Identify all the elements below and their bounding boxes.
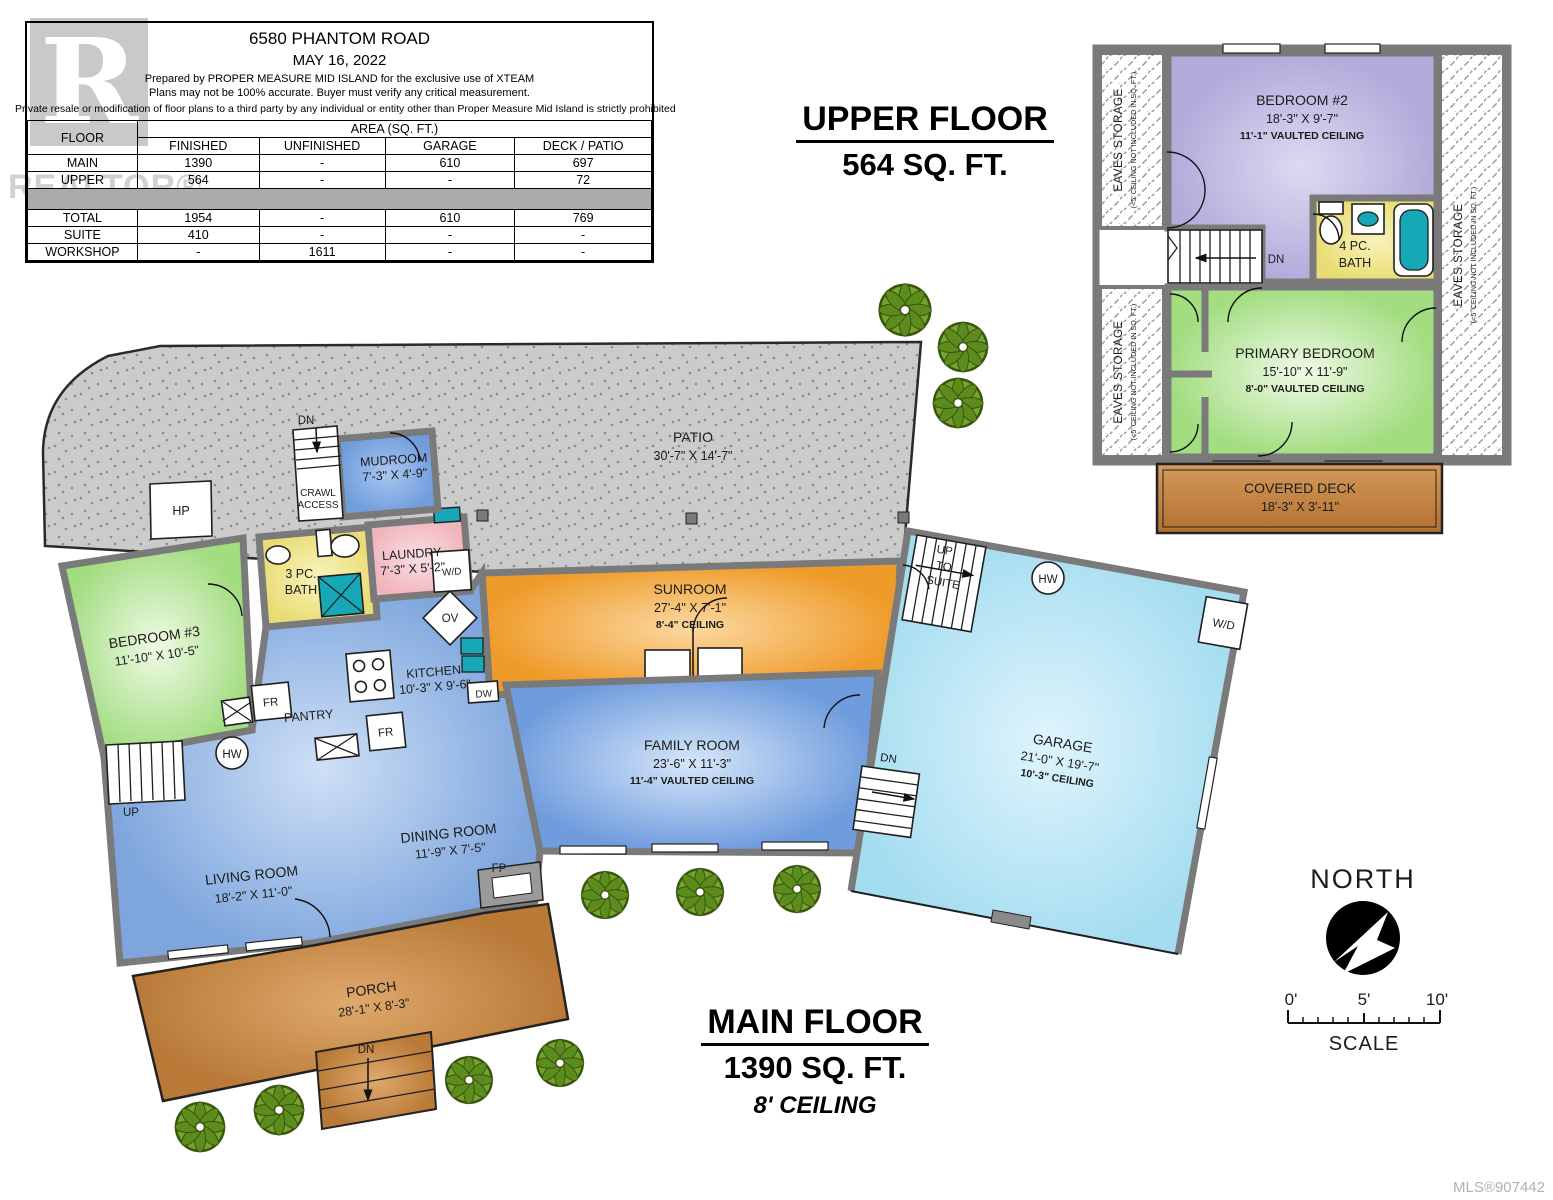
svg-text:(<5' CEILING NOT INCLUDED IN S: (<5' CEILING NOT INCLUDED IN SQ. FT.) bbox=[1129, 72, 1138, 208]
upper-dn-label: DN bbox=[1268, 254, 1285, 266]
garage-dn-stairs bbox=[853, 766, 919, 837]
accuracy-line: Plans may not be 100% accurate. Buyer mu… bbox=[27, 87, 652, 99]
scale-tick-0: 0' bbox=[1285, 990, 1298, 1009]
bath4-label-1: 4 PC. bbox=[1339, 239, 1370, 253]
shrub-icon bbox=[445, 1056, 493, 1104]
bedroom2-label: BEDROOM #2 bbox=[1256, 92, 1348, 108]
crawl-dn-label: DN bbox=[298, 415, 315, 427]
fireplace: FP bbox=[478, 862, 543, 908]
crawl-label-2: ACCESS bbox=[297, 500, 338, 511]
main-floor-title: MAIN FLOOR 1390 SQ. FT. 8' CEILING bbox=[655, 1003, 975, 1120]
primary-dims: 15'-10" X 11'-9" bbox=[1263, 365, 1348, 379]
scale-tick-10: 10' bbox=[1426, 990, 1448, 1009]
fp-label: FP bbox=[492, 863, 507, 875]
col-unfinished: UNFINISHED bbox=[259, 138, 385, 155]
family-dims: 23'-6" X 11'-3" bbox=[653, 757, 731, 771]
crawl-access-stairs: DN CRAWL ACCESS bbox=[293, 415, 343, 521]
deck-label: COVERED DECK bbox=[1244, 480, 1357, 496]
table-row: MAIN1390 -610 697 bbox=[28, 155, 652, 172]
area-table: FLOOR AREA (SQ. FT.) FINISHED UNFINISHED… bbox=[27, 120, 652, 261]
shrub-icon bbox=[536, 1039, 584, 1087]
primary-label: PRIMARY BEDROOM bbox=[1235, 345, 1375, 361]
upper-floor-title: UPPER FLOOR 564 SQ. FT. bbox=[775, 100, 1075, 183]
hp-label: HP bbox=[172, 504, 189, 518]
sunroom-label: SUNROOM bbox=[653, 581, 726, 597]
table-row: UPPER564 -- 72 bbox=[28, 172, 652, 189]
shrub-icon bbox=[938, 322, 988, 372]
fridge1-label: FR bbox=[262, 696, 279, 710]
bedroom2-dims: 18'-3" X 9'-7" bbox=[1266, 112, 1338, 126]
col-finished: FINISHED bbox=[137, 138, 259, 155]
up-label: UP bbox=[123, 807, 139, 819]
area-header: AREA (SQ. FT.) bbox=[137, 121, 651, 138]
mls-number: MLS®907442 bbox=[1453, 1179, 1545, 1196]
upper-floor-plan: BEDROOM #2 18'-3" X 9'-7" 11'-1" VAULTED… bbox=[1096, 44, 1508, 533]
deck-dims: 18'-3" X 3'-11" bbox=[1261, 500, 1339, 514]
heat-pump: HP bbox=[150, 481, 212, 539]
shrub-icon bbox=[175, 1102, 225, 1152]
family-ceiling: 11'-4" VAULTED CEILING bbox=[630, 775, 754, 787]
svg-text:EAVES STORAGE: EAVES STORAGE bbox=[1113, 88, 1125, 191]
fridge2-label: FR bbox=[377, 726, 394, 740]
bath3-label-2: BATH bbox=[285, 583, 317, 597]
room-laundry: LAUNDRY 7'-3" X 5'-2" W/D bbox=[368, 507, 471, 599]
bath4-label-2: BATH bbox=[1339, 256, 1371, 270]
scale-bar: 0' 5' 10' SCALE bbox=[1285, 990, 1448, 1055]
dw-label: DW bbox=[475, 688, 493, 700]
garage-hw-label: HW bbox=[1038, 574, 1057, 586]
shrub-icon bbox=[879, 284, 932, 337]
info-table: 6580 PHANTOM ROAD MAY 16, 2022 Prepared … bbox=[25, 21, 654, 263]
shrub-icon bbox=[581, 871, 629, 919]
room-mudroom: MUDROOM 7'-3" X 4'-9" bbox=[337, 431, 438, 517]
family-label: FAMILY ROOM bbox=[644, 737, 740, 753]
room-garage: UP TO SUITE DN HW W/D GARAGE 21'-0" X 19… bbox=[851, 531, 1248, 954]
prepared-line: Prepared by PROPER MEASURE MID ISLAND fo… bbox=[27, 73, 652, 85]
room-family: FAMILY ROOM 23'-6" X 11'-3" 11'-4" VAULT… bbox=[506, 673, 878, 854]
scale-label: SCALE bbox=[1329, 1033, 1400, 1055]
shrub-icon bbox=[773, 865, 821, 913]
patio-dims: 30'-7" X 14'-7" bbox=[654, 449, 733, 463]
svg-text:(<5' CEILING NOT INCLUDED IN S: (<5' CEILING NOT INCLUDED IN SQ. FT.) bbox=[1129, 304, 1138, 440]
plan-date: MAY 16, 2022 bbox=[27, 52, 652, 69]
bath3-label-1: 3 PC. bbox=[285, 567, 316, 581]
table-row: TOTAL1954 -610 769 bbox=[28, 210, 652, 227]
room-covered-deck: COVERED DECK 18'-3" X 3'-11" bbox=[1157, 464, 1442, 533]
svg-text:EAVES STORAGE: EAVES STORAGE bbox=[1113, 320, 1125, 423]
col-deck-patio: DECK / PATIO bbox=[515, 138, 652, 155]
laundry-wd-label: W/D bbox=[442, 566, 462, 578]
scale-tick-5: 5' bbox=[1358, 990, 1371, 1009]
north-label: NORTH bbox=[1310, 864, 1416, 894]
garage-dn-label: DN bbox=[879, 752, 897, 766]
floor-plan-page: R REALTOR® 6580 PHANTOM ROAD MAY 16, 202… bbox=[0, 0, 1553, 1200]
floor-header: FLOOR bbox=[28, 121, 138, 155]
svg-text:(<5' CEILING NOT INCLUDED IN S: (<5' CEILING NOT INCLUDED IN SQ. FT.) bbox=[1469, 187, 1478, 323]
crawl-label-1: CRAWL bbox=[300, 488, 336, 499]
sunroom-dims: 27'-4" X 7'-1" bbox=[654, 601, 726, 615]
compass: NORTH bbox=[1310, 864, 1416, 975]
patio-label: PATIO bbox=[673, 429, 713, 445]
shrub-icon bbox=[676, 868, 724, 916]
address: 6580 PHANTOM ROAD bbox=[27, 29, 652, 49]
porch-dn-label: DN bbox=[358, 1044, 375, 1056]
shrub-icon bbox=[933, 378, 983, 428]
room-bath-3pc: 3 PC. BATH bbox=[259, 527, 377, 627]
room-primary-bedroom: PRIMARY BEDROOM 15'-10" X 11'-9" 8'-0" V… bbox=[1168, 287, 1437, 457]
shrub-icon bbox=[254, 1085, 304, 1135]
oven-label: OV bbox=[442, 613, 459, 625]
table-row: WORKSHOP- 1611- - bbox=[28, 244, 652, 261]
svg-text:EAVES STORAGE: EAVES STORAGE bbox=[1453, 203, 1465, 306]
primary-ceiling: 8'-0" VAULTED CEILING bbox=[1245, 383, 1364, 395]
sunroom-ceiling: 8'-4" CEILING bbox=[656, 619, 724, 631]
hw-tank-label: HW bbox=[222, 749, 241, 761]
main-floor-plan: PATIO 30'-7" X 14'-7" BEDROOM #3 11'-10"… bbox=[43, 284, 1248, 1152]
col-garage: GARAGE bbox=[385, 138, 515, 155]
private-line: Private resale or modification of floor … bbox=[15, 103, 665, 115]
bedroom2-ceiling: 11'-1" VAULTED CEILING bbox=[1240, 130, 1364, 142]
room-bath-4pc: 4 PC. BATH bbox=[1313, 198, 1437, 282]
room-bedroom-3: BEDROOM #3 11'-10" X 10'-5" bbox=[62, 538, 253, 757]
table-row: SUITE410 -- - bbox=[28, 227, 652, 244]
table-separator bbox=[28, 189, 652, 210]
